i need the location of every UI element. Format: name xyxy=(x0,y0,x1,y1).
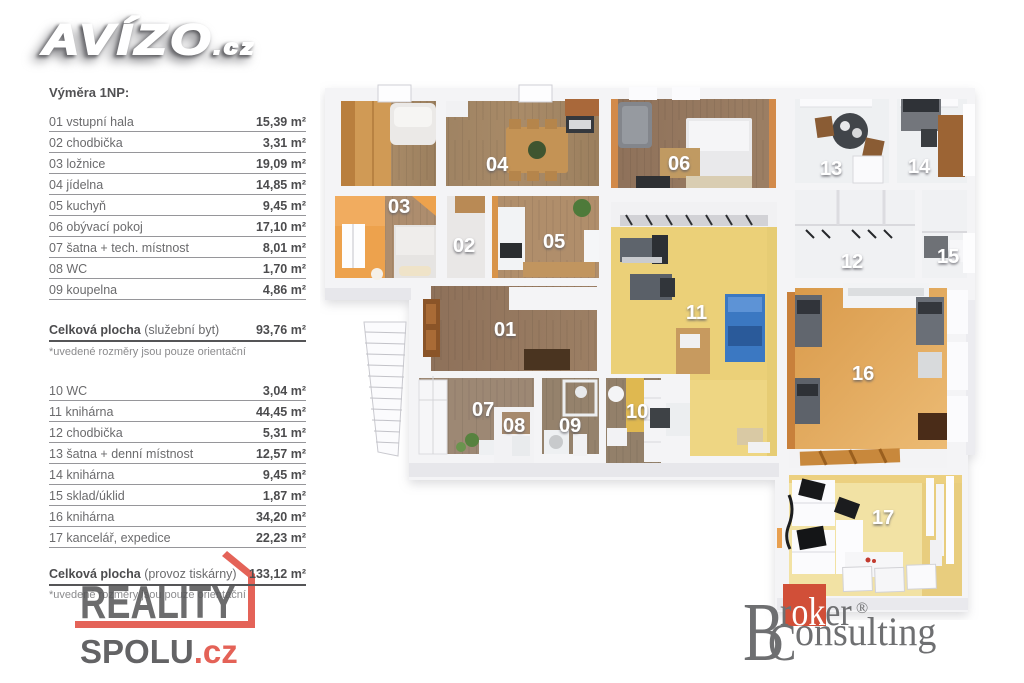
svg-text:09: 09 xyxy=(559,415,581,437)
svg-text:01: 01 xyxy=(494,319,516,341)
svg-text:10: 10 xyxy=(626,401,648,423)
svg-text:17: 17 xyxy=(872,507,894,529)
svg-text:03: 03 xyxy=(388,196,410,218)
svg-text:04: 04 xyxy=(486,154,509,176)
svg-text:C: C xyxy=(768,614,796,673)
svg-text:08: 08 xyxy=(503,415,525,437)
svg-text:14: 14 xyxy=(908,156,931,178)
svg-text:15: 15 xyxy=(937,246,959,268)
svg-text:11: 11 xyxy=(686,302,707,324)
svg-text:onsulting: onsulting xyxy=(795,610,936,654)
svg-text:02: 02 xyxy=(453,235,475,257)
svg-text:16: 16 xyxy=(852,363,874,385)
svg-text:13: 13 xyxy=(820,158,842,180)
svg-text:12: 12 xyxy=(841,251,863,273)
svg-text:05: 05 xyxy=(543,231,565,253)
svg-text:07: 07 xyxy=(472,399,494,421)
svg-text:06: 06 xyxy=(668,153,690,175)
